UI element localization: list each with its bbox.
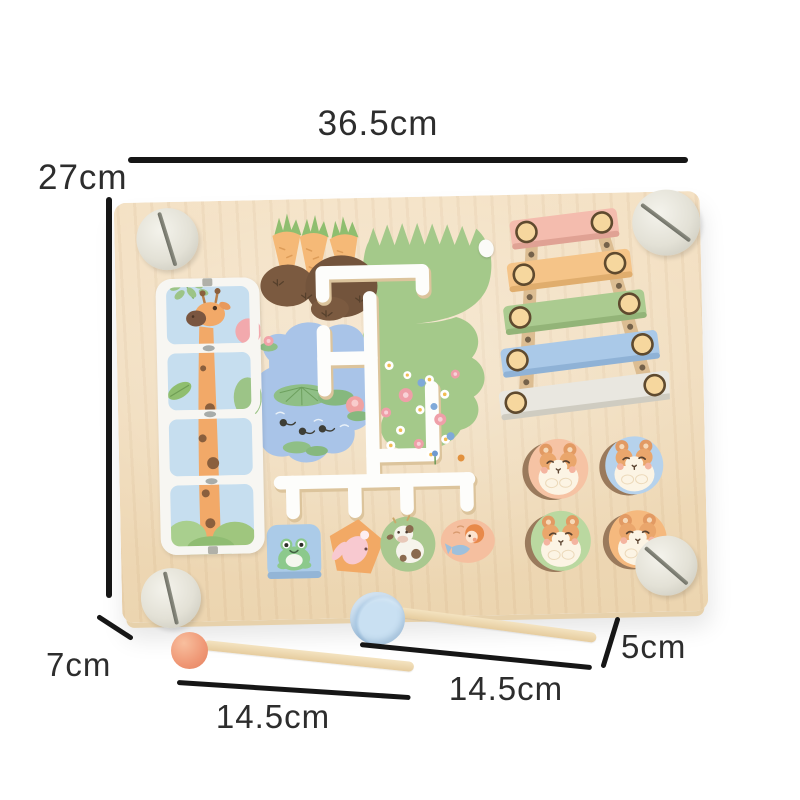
drum-mallet-length-label: 14.5cm <box>431 670 581 708</box>
product-dimension-figure: 36.5cm 27cm <box>0 0 800 800</box>
frog-slider <box>266 524 321 579</box>
board-width-label: 36.5cm <box>293 104 463 144</box>
hamster-peg-green <box>524 510 591 572</box>
board-height-line <box>106 197 112 598</box>
cow-slider <box>380 516 436 573</box>
thickness-label: 7cm <box>46 646 111 684</box>
hamster-peg-peach <box>522 438 589 500</box>
rabbit-slider <box>326 516 386 576</box>
pond-illustration <box>247 321 380 464</box>
screw-slot <box>163 571 179 624</box>
ball-mallet-length-label: 14.5cm <box>198 698 348 736</box>
screw-slot <box>157 212 177 266</box>
giraffe-puzzle-tiles <box>155 277 265 555</box>
screw-slot <box>644 546 689 585</box>
drum-head-tick-line <box>600 616 620 668</box>
drum-head-size-label: 5cm <box>621 628 686 666</box>
mermaid-slider <box>440 518 495 563</box>
ball-mallet-head <box>171 632 208 669</box>
board-width-line <box>128 157 688 163</box>
giraffe-slide-puzzle <box>155 277 265 555</box>
hamster-peg-blue <box>599 436 664 496</box>
activity-board <box>114 191 709 623</box>
board-height-label: 27cm <box>38 158 128 198</box>
screw-slot <box>640 203 691 243</box>
